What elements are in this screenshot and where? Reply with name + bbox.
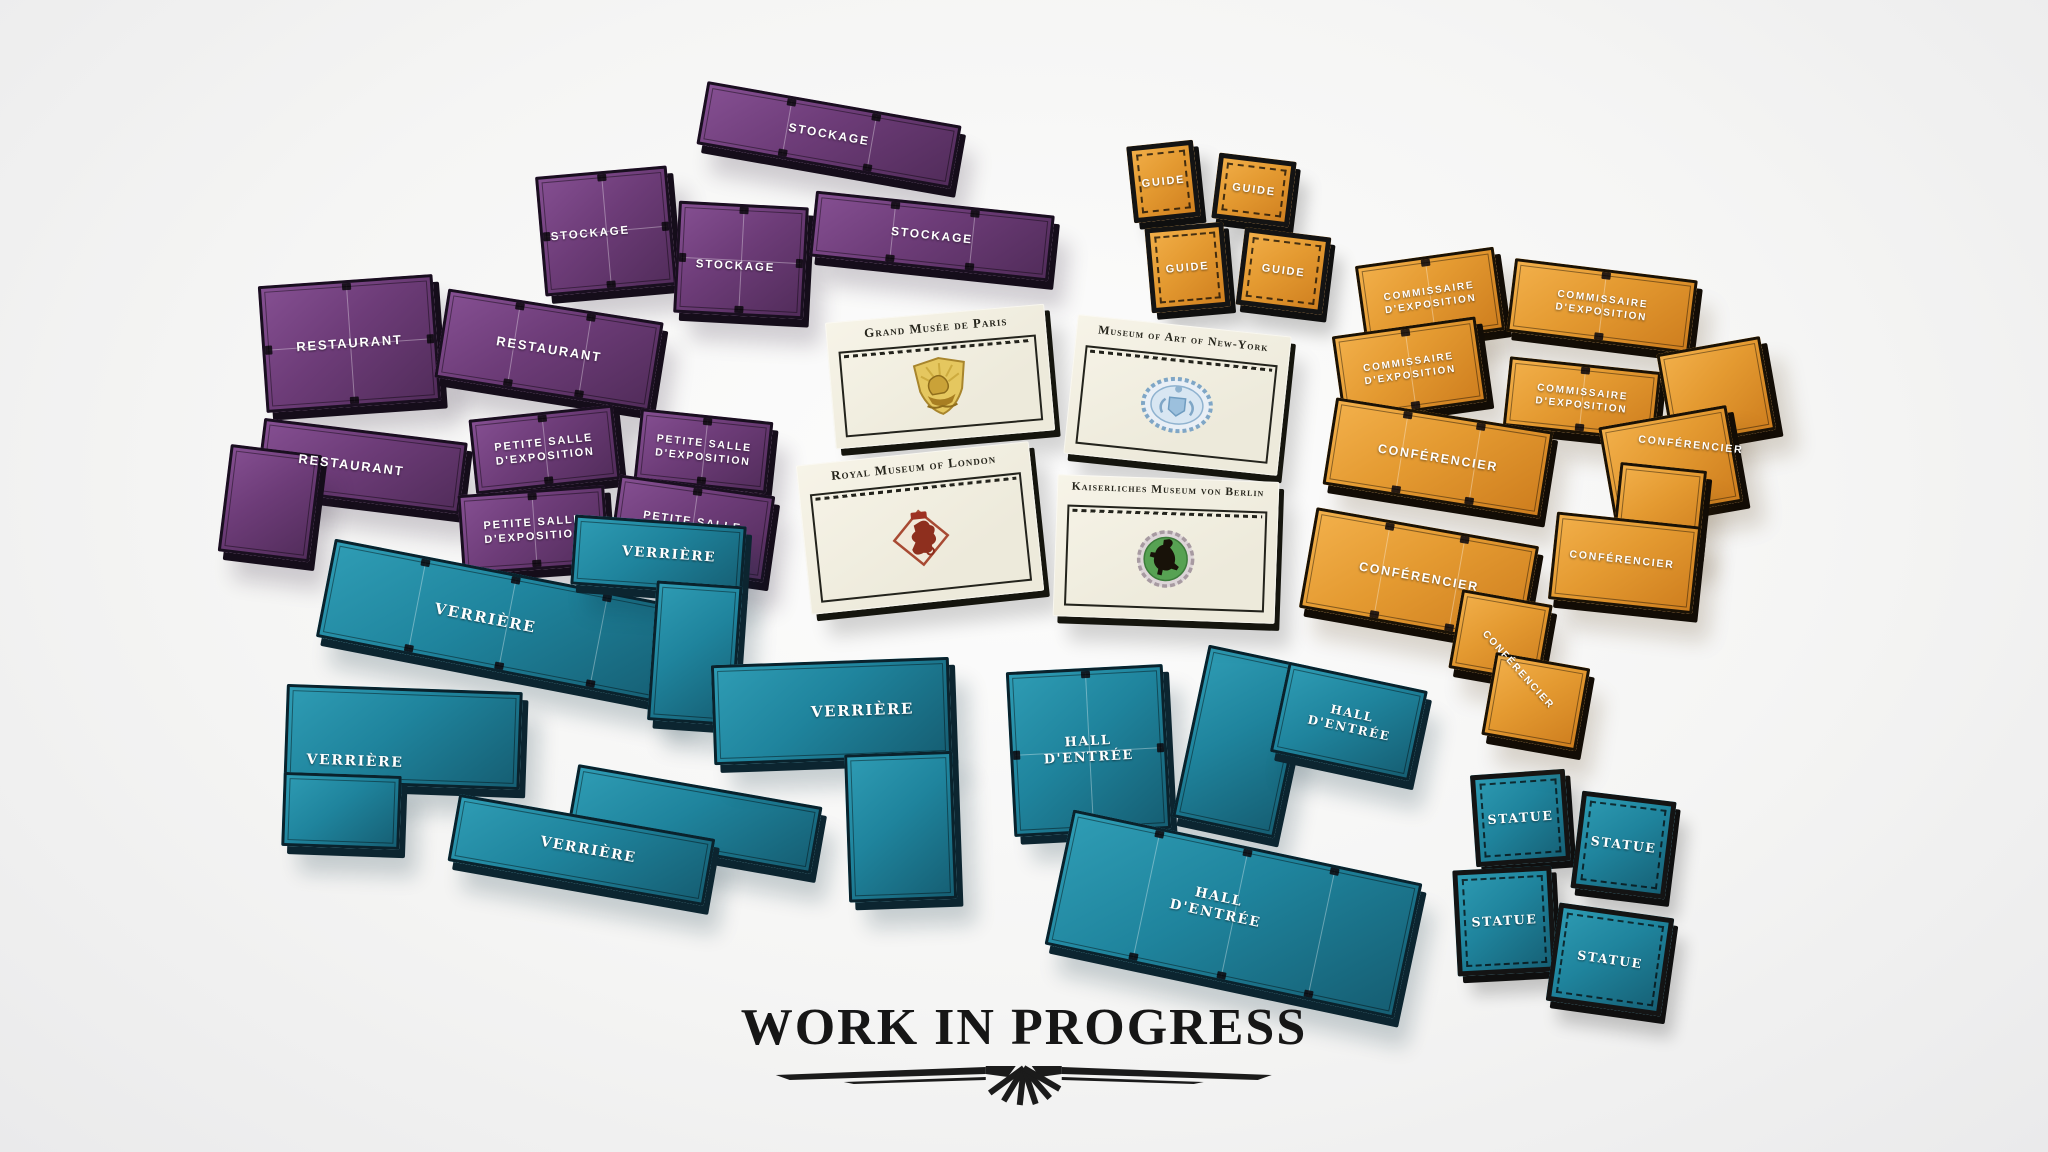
card-royal-museum-of-london: Royal Museum of London <box>796 441 1044 615</box>
card-museum-of-art-of-new-york: Museum of Art of New-York <box>1063 314 1291 476</box>
card-royal-museum-of-london-plate <box>810 472 1032 603</box>
berlin-bear-icon <box>1134 526 1198 590</box>
card-grand-musee-de-paris: Grand Musée de Paris <box>825 304 1055 450</box>
cards-layer: Grand Musée de ParisMuseum of Art of New… <box>0 0 2048 1152</box>
card-museum-of-art-of-new-york-plate <box>1075 345 1277 464</box>
card-grand-musee-de-paris-plate <box>838 334 1043 437</box>
new-york-seal-icon <box>1136 372 1218 438</box>
scene: STOCKAGESTOCKAGESTOCKAGESTOCKAGERESTAURA… <box>0 0 2048 1152</box>
art-deco-divider-icon <box>774 1061 1274 1109</box>
card-kaiserliches-museum-von-berlin: Kaiserliches Museum von Berlin <box>1053 474 1280 624</box>
card-kaiserliches-museum-von-berlin-title: Kaiserliches Museum von Berlin <box>1057 480 1279 500</box>
work-in-progress-title: WORK IN PROGRESS <box>741 998 1308 1057</box>
footer: WORK IN PROGRESS <box>741 998 1308 1109</box>
card-kaiserliches-museum-von-berlin-plate <box>1064 505 1267 613</box>
paris-crest-icon <box>906 352 975 419</box>
london-dragon-icon <box>885 501 958 574</box>
